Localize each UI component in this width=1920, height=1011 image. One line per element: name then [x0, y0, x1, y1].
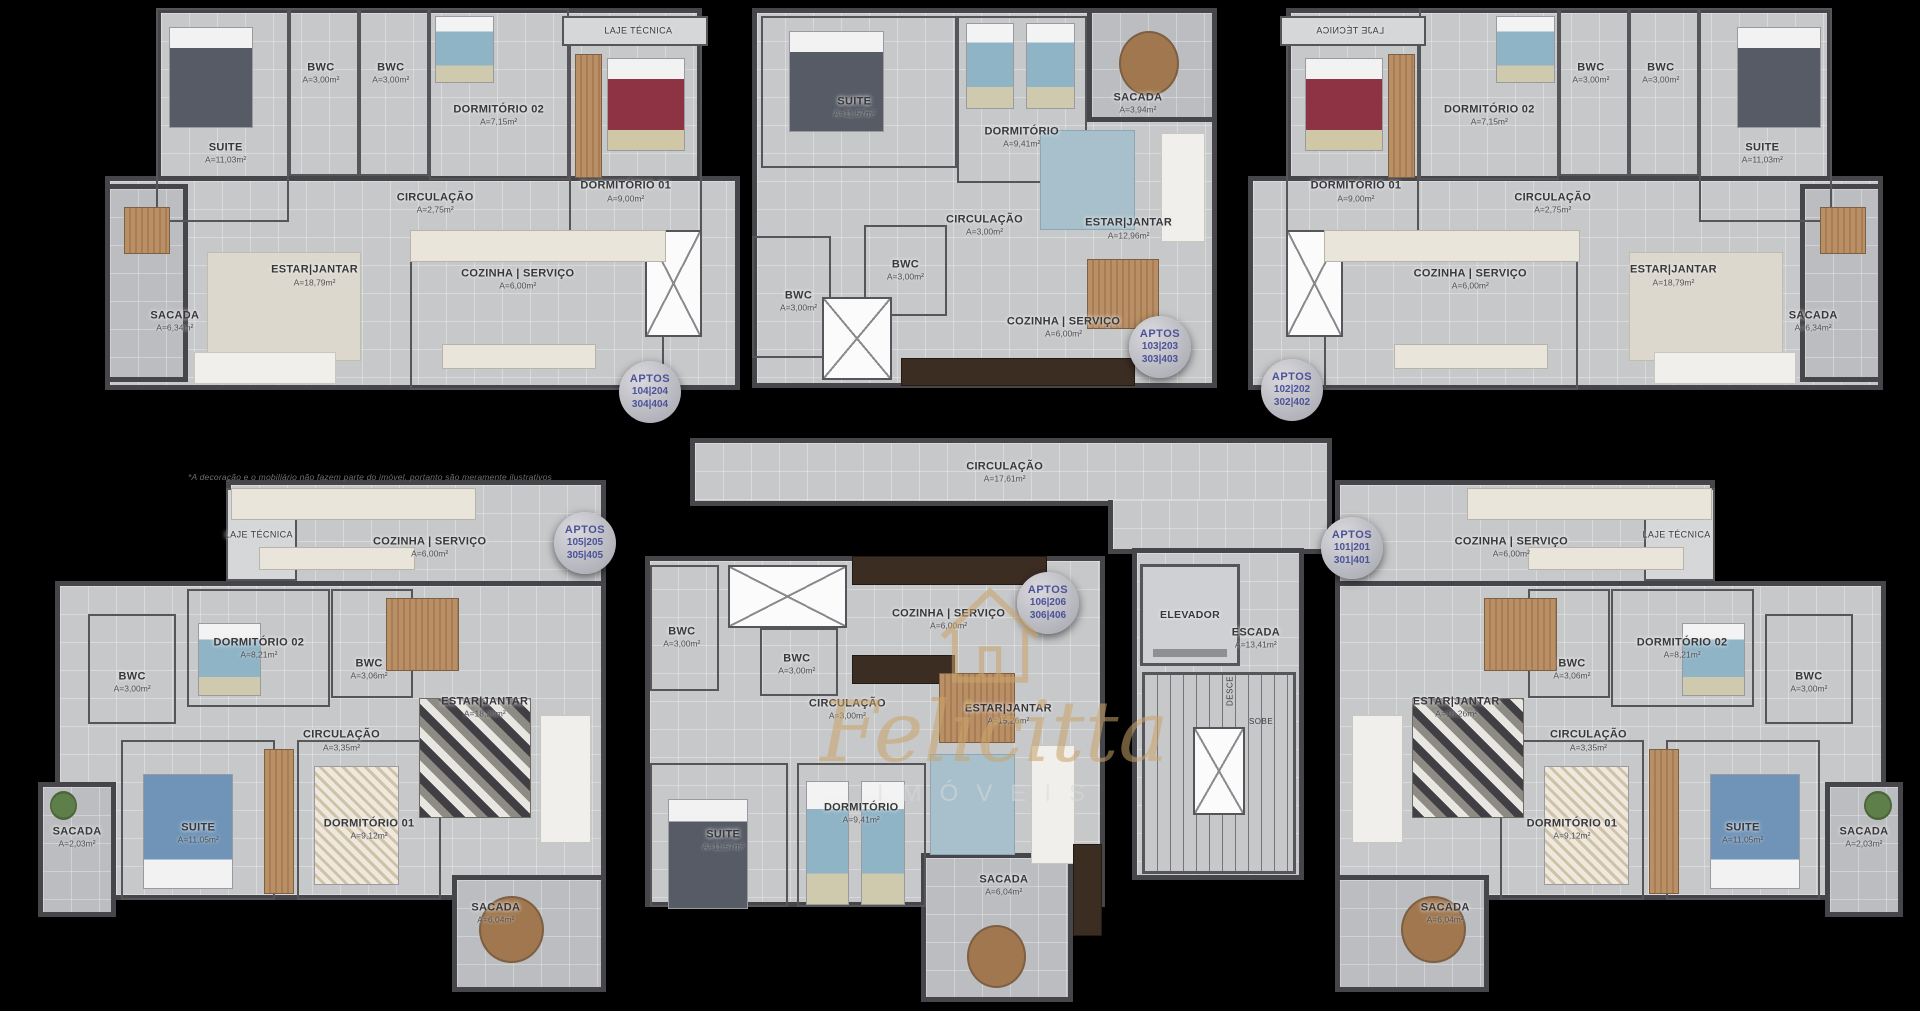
room-name: SACADA: [1840, 825, 1889, 838]
room-name: BWC: [1572, 61, 1609, 74]
room-area: A=11,05m²: [1722, 834, 1763, 844]
room-label: SUITEA=11,05m²: [178, 821, 219, 844]
badge-title: APTOS: [1140, 328, 1180, 342]
room-label: SACADAA=2,03m²: [53, 825, 102, 848]
counter-decor: [410, 230, 666, 263]
room-area: A=3,00m²: [780, 302, 817, 312]
room-name: SACADA: [150, 310, 199, 323]
bed-dark-decor: [668, 799, 748, 909]
room-label: LAJE TÉCNICA: [1316, 26, 1384, 37]
room-name: SACADA: [979, 873, 1028, 886]
disclaimer-text: *A decoração e o mobiliário não fazem pa…: [188, 472, 588, 482]
room-label: SACADAA=6,04m²: [1421, 901, 1470, 924]
room-name: DORMITÓRIO: [984, 126, 1059, 139]
room-area: A=9,41m²: [824, 814, 899, 824]
corridor-connector: [1108, 500, 1332, 554]
room-label: DORMITÓRIO 02A=8,21m²: [1637, 636, 1728, 659]
room-label: ESTAR|JANTARA=18,26m²: [441, 695, 528, 718]
wood-decor: [1649, 749, 1679, 894]
sofa-decor: [194, 352, 336, 385]
sofa-decor: [540, 715, 592, 843]
room-name: DORMITÓRIO 02: [453, 103, 544, 116]
room-area: A=3,00m²: [114, 683, 151, 693]
counter-decor: [442, 344, 596, 369]
room-area: A=2,03m²: [1840, 839, 1889, 849]
counter-decor: [1394, 344, 1548, 369]
counter-dark-decor: [901, 358, 1136, 387]
room-name: ESTAR|JANTAR: [271, 264, 358, 277]
room-area: A=3,06m²: [351, 671, 388, 681]
room-label: BWCA=3,00m²: [302, 61, 339, 84]
room-name: CIRCULAÇÃO: [809, 697, 886, 710]
room-area: A=11,57m²: [703, 841, 744, 851]
room-area: A=9,12m²: [1527, 830, 1618, 840]
room-area: A=7,15m²: [453, 116, 544, 126]
room-name: SUITE: [834, 95, 875, 108]
room-area: A=8,21m²: [1637, 650, 1728, 660]
room-label: DORMITÓRIOA=9,41m²: [984, 126, 1059, 149]
room-label: SACADAA=6,04m²: [471, 901, 520, 924]
badge-apt-numbers: 304|404: [632, 399, 668, 412]
room-name: SACADA: [53, 825, 102, 838]
bed-blue-decor: [1026, 23, 1075, 109]
room-area: A=6,00m²: [1414, 281, 1527, 291]
bed-blue-decor: [966, 23, 1015, 109]
room-area: A=11,03m²: [205, 155, 246, 165]
badge-title: APTOS: [1332, 529, 1372, 543]
unit-105-205-305-405: LAJE TÉCNICACOZINHA | SERVIÇOA=6,00m²DOR…: [55, 480, 606, 900]
room-area: A=18,79m²: [271, 277, 358, 287]
stair-shaft: [1193, 727, 1245, 815]
room-name: DORMITÓRIO 01: [324, 817, 415, 830]
room-label: LAJE TÉCNICA: [225, 529, 293, 540]
plant-decor: [1864, 791, 1892, 820]
room-name: DORMITÓRIO 02: [214, 636, 305, 649]
room-area: A=3,00m²: [1642, 74, 1679, 84]
room-area: A=12,96m²: [1085, 230, 1172, 240]
room-name: DORMITÓRIO 02: [1444, 103, 1535, 116]
bed-blue-decor: [806, 781, 849, 905]
room-area: A=3,00m²: [887, 272, 924, 282]
room-area: A=3,00m²: [663, 639, 700, 649]
room-name: DORMITÓRIO 01: [580, 180, 671, 193]
room-name: BWC: [1790, 670, 1827, 683]
apartment-badge: APTOS104|204304|404: [619, 361, 681, 423]
badge-apt-numbers: 103|203: [1142, 341, 1178, 354]
room-label: DORMITÓRIO 01A=9,12m²: [324, 817, 415, 840]
room-label: LAJE TÉCNICA: [604, 26, 672, 37]
room-area: A=18,26m²: [441, 708, 528, 718]
room-label: BWCA=3,06m²: [351, 657, 388, 680]
badge-apt-numbers: 104|204: [632, 386, 668, 399]
room-name: LAJE TÉCNICA: [225, 529, 293, 540]
room-name: CIRCULAÇÃO: [1550, 729, 1627, 742]
bed-red-decor: [1305, 58, 1383, 152]
room-area: A=6,00m²: [1007, 329, 1120, 339]
room-area: A=11,57m²: [834, 108, 875, 118]
room-label: LAJE TÉCNICA: [1643, 529, 1711, 540]
badge-apt-numbers: 106|206: [1030, 597, 1066, 610]
room-label: BWCA=3,00m²: [1642, 61, 1679, 84]
room-area: A=8,21m²: [214, 650, 305, 660]
wood-decor: [1820, 207, 1866, 255]
room-name: BWC: [663, 625, 700, 638]
room-label: ESTAR|JANTARA=18,79m²: [1630, 264, 1717, 287]
unit-102-202-302-402: SUITEA=11,03m²BWCA=3,00m²BWCA=3,00m²DORM…: [1248, 8, 1883, 390]
room-area: A=18,26m²: [1413, 708, 1500, 718]
sofa-decor: [1352, 715, 1404, 843]
counter-dark-decor: [852, 556, 1047, 585]
bed-red-decor: [607, 58, 685, 152]
room-wall: [359, 8, 429, 176]
wood-decor: [264, 749, 294, 894]
room-area: A=3,94m²: [1114, 105, 1163, 115]
counter-dark-decor: [1073, 844, 1103, 936]
stair-elevator-core: ELEVADOR ESCADA A=13,41m² DESCE SOBE: [1132, 548, 1304, 880]
room-name: SUITE: [1742, 141, 1783, 154]
room-area: A=6,04m²: [1421, 914, 1470, 924]
room-label: CIRCULAÇÃOA=2,75m²: [1514, 191, 1591, 214]
apartment-badge: APTOS105|205305|405: [554, 512, 616, 574]
room-label: DORMITÓRIO 01A=9,00m²: [580, 180, 671, 203]
apartment-badge: APTOS106|206306|406: [1017, 572, 1079, 634]
badge-apt-numbers: 305|405: [567, 550, 603, 563]
room-name: COZINHA | SERVIÇO: [1414, 268, 1527, 281]
room-name: COZINHA | SERVIÇO: [461, 268, 574, 281]
counter-decor: [1467, 488, 1711, 519]
room-label: ESTAR|JANTARA=15,26m²: [965, 702, 1052, 725]
room-area: A=7,15m²: [1444, 116, 1535, 126]
room-label: ESTAR|JANTARA=18,79m²: [271, 264, 358, 287]
unit-104-204-304-404: SUITEA=11,03m²BWCA=3,00m²BWCA=3,00m²DORM…: [105, 8, 740, 390]
room-name: COZINHA | SERVIÇO: [1007, 316, 1120, 329]
room-name: LAJE TÉCNICA: [1316, 26, 1384, 37]
room-area: A=3,35m²: [1550, 742, 1627, 752]
bed-dark-decor: [169, 27, 254, 128]
room-name: SACADA: [1421, 901, 1470, 914]
room-label: BWCA=3,00m²: [1572, 61, 1609, 84]
room-name: BWC: [887, 259, 924, 272]
room-name: ESTAR|JANTAR: [1630, 264, 1717, 277]
corridor: CIRCULAÇÃO A=17,61m²: [690, 438, 1332, 506]
bed-blue-decor: [435, 16, 494, 83]
room-label: SACADAA=6,04m²: [979, 873, 1028, 896]
room-label: SACADAA=2,03m²: [1840, 825, 1889, 848]
room-name: LAJE TÉCNICA: [1643, 529, 1711, 540]
room-area: A=6,04m²: [471, 914, 520, 924]
badge-title: APTOS: [1272, 371, 1312, 385]
room-area: A=3,00m²: [1790, 683, 1827, 693]
room-name: COZINHA | SERVIÇO: [1455, 536, 1568, 549]
room-area: A=6,00m²: [373, 549, 486, 559]
room-area: A=2,03m²: [53, 839, 102, 849]
room-label: SUITEA=11,57m²: [703, 828, 744, 851]
room-label: CIRCULAÇÃOA=3,00m²: [809, 697, 886, 720]
room-label: DORMITÓRIO 01A=9,12m²: [1527, 817, 1618, 840]
room-name: DORMITÓRIO: [824, 801, 899, 814]
room-label: SACADAA=3,94m²: [1114, 91, 1163, 114]
room-label: COZINHA | SERVIÇOA=6,00m²: [1455, 536, 1568, 559]
floorplan-canvas: *A decoração e o mobiliário não fazem pa…: [0, 0, 1920, 1011]
room-label: SACADAA=6,34m²: [150, 310, 199, 333]
wood-round-decor: [967, 925, 1026, 988]
room-area: A=9,12m²: [324, 830, 415, 840]
ventilation-shaft: [728, 565, 848, 628]
room-label: DORMITÓRIO 02A=7,15m²: [453, 103, 544, 126]
badge-apt-numbers: 301|401: [1334, 555, 1370, 568]
stairs-label: ESCADA A=13,41m²: [1232, 626, 1280, 649]
corridor-label: CIRCULAÇÃO A=17,61m²: [966, 460, 1043, 483]
room-label: DORMITÓRIO 02A=7,15m²: [1444, 103, 1535, 126]
wood-decor: [1388, 54, 1415, 178]
room-area: A=2,75m²: [397, 204, 474, 214]
badge-title: APTOS: [630, 373, 670, 387]
room-area: A=3,00m²: [778, 666, 815, 676]
room-name: SACADA: [1789, 310, 1838, 323]
room-label: DORMITÓRIO 02A=8,21m²: [214, 636, 305, 659]
room-label: CIRCULAÇÃOA=3,35m²: [1550, 729, 1627, 752]
staircase: [1142, 672, 1296, 874]
wood-round-decor: [1119, 31, 1179, 96]
room-area: A=6,00m²: [1455, 549, 1568, 559]
room-name: SUITE: [703, 828, 744, 841]
room-area: A=3,06m²: [1553, 671, 1590, 681]
badge-apt-numbers: 102|202: [1274, 384, 1310, 397]
room-area: A=6,00m²: [892, 621, 1005, 631]
room-label: SUITEA=11,05m²: [1722, 821, 1763, 844]
room-label: COZINHA | SERVIÇOA=6,00m²: [373, 536, 486, 559]
room-area: A=3,00m²: [809, 711, 886, 721]
room-name: CIRCULAÇÃO: [1514, 191, 1591, 204]
room-label: ESTAR|JANTARA=18,26m²: [1413, 695, 1500, 718]
room-label: COZINHA | SERVIÇOA=6,00m²: [1007, 316, 1120, 339]
room-name: ESTAR|JANTAR: [441, 695, 528, 708]
room-area: A=3,00m²: [1572, 74, 1609, 84]
room-label: BWCA=3,00m²: [778, 652, 815, 675]
ventilation-shaft: [822, 297, 892, 381]
room-area: A=3,00m²: [946, 226, 1023, 236]
rug-blue-decor: [930, 754, 1015, 855]
stairs-down-label: DESCE: [1226, 676, 1235, 706]
room-label: CIRCULAÇÃOA=3,35m²: [303, 729, 380, 752]
room-name: DORMITÓRIO 01: [1527, 817, 1618, 830]
room-label: BWCA=3,00m²: [372, 61, 409, 84]
room-wall: [1629, 8, 1699, 176]
room-name: ESTAR|JANTAR: [1085, 217, 1172, 230]
room-label: CIRCULAÇÃOA=2,75m²: [397, 191, 474, 214]
apartment-badge: APTOS103|203303|403: [1129, 316, 1191, 378]
room-label: SACADAA=6,34m²: [1789, 310, 1838, 333]
room-name: SUITE: [178, 821, 219, 834]
apartment-badge: APTOS102|202302|402: [1261, 359, 1323, 421]
room-label: BWCA=3,00m²: [663, 625, 700, 648]
bed-blue-decor: [861, 781, 904, 905]
room-label: BWCA=3,00m²: [780, 289, 817, 312]
room-name: LAJE TÉCNICA: [604, 26, 672, 37]
room-name: SACADA: [471, 901, 520, 914]
bed-blue-decor: [1496, 16, 1555, 83]
room-wall: [1559, 8, 1629, 176]
room-area: A=6,04m²: [979, 886, 1028, 896]
room-name: ESTAR|JANTAR: [1413, 695, 1500, 708]
room-name: COZINHA | SERVIÇO: [892, 607, 1005, 620]
room-label: DORMITÓRIOA=9,41m²: [824, 801, 899, 824]
sofa-decor: [1031, 745, 1074, 864]
room-name: ESTAR|JANTAR: [965, 702, 1052, 715]
room-name: SUITE: [205, 141, 246, 154]
room-area: A=15,26m²: [965, 715, 1052, 725]
wood-decor: [575, 54, 602, 178]
room-label: BWCA=3,00m²: [887, 259, 924, 282]
room-area: A=6,00m²: [461, 281, 574, 291]
badge-apt-numbers: 105|205: [567, 537, 603, 550]
room-label: SUITEA=11,03m²: [1742, 141, 1783, 164]
badge-title: APTOS: [1028, 584, 1068, 598]
room-name: BWC: [1642, 61, 1679, 74]
wood-decor: [386, 598, 460, 671]
room-area: A=9,00m²: [580, 193, 671, 203]
room-area: A=3,00m²: [302, 74, 339, 84]
room-area: A=2,75m²: [1514, 204, 1591, 214]
room-area: A=6,34m²: [150, 323, 199, 333]
room-name: BWC: [778, 652, 815, 665]
wood-decor: [1484, 598, 1558, 671]
elevator: ELEVADOR: [1140, 564, 1240, 666]
room-label: BWCA=3,06m²: [1553, 657, 1590, 680]
room-label: BWCA=3,00m²: [114, 670, 151, 693]
room-label: SUITEA=11,03m²: [205, 141, 246, 164]
room-label: ESTAR|JANTARA=12,96m²: [1085, 217, 1172, 240]
apartment-badge: APTOS101|201301|401: [1321, 517, 1383, 579]
room-name: CIRCULAÇÃO: [303, 729, 380, 742]
unit-101-201-301-401: LAJE TÉCNICACOZINHA | SERVIÇOA=6,00m²DOR…: [1335, 480, 1886, 900]
room-area: A=3,35m²: [303, 742, 380, 752]
room-name: BWC: [372, 61, 409, 74]
room-area: A=3,00m²: [372, 74, 409, 84]
room-label: BWCA=3,00m²: [1790, 670, 1827, 693]
room-label: SUITEA=11,57m²: [834, 95, 875, 118]
badge-apt-numbers: 303|403: [1142, 354, 1178, 367]
room-area: A=9,00m²: [1311, 193, 1402, 203]
badge-apt-numbers: 101|201: [1334, 542, 1370, 555]
badge-apt-numbers: 306|406: [1030, 610, 1066, 623]
room-name: SACADA: [1114, 91, 1163, 104]
badge-title: APTOS: [565, 524, 605, 538]
plant-decor: [50, 791, 78, 820]
room-name: DORMITÓRIO 02: [1637, 636, 1728, 649]
room-wall: [289, 8, 359, 176]
room-name: BWC: [114, 670, 151, 683]
room-area: A=18,79m²: [1630, 277, 1717, 287]
room-name: BWC: [302, 61, 339, 74]
bed-dark-decor: [1737, 27, 1822, 128]
stairs-up-label: SOBE: [1249, 717, 1273, 726]
room-label: COZINHA | SERVIÇOA=6,00m²: [461, 268, 574, 291]
sofa-decor: [1654, 352, 1796, 385]
room-label: CIRCULAÇÃOA=3,00m²: [946, 213, 1023, 236]
room-name: CIRCULAÇÃO: [946, 213, 1023, 226]
counter-decor: [231, 488, 475, 519]
room-name: BWC: [1553, 657, 1590, 670]
room-area: A=11,05m²: [178, 834, 219, 844]
room-label: DORMITÓRIO 01A=9,00m²: [1311, 180, 1402, 203]
counter-decor: [1324, 230, 1580, 263]
room-label: COZINHA | SERVIÇOA=6,00m²: [892, 607, 1005, 630]
room-name: BWC: [780, 289, 817, 302]
room-name: BWC: [351, 657, 388, 670]
wood-decor: [124, 207, 170, 255]
room-name: CIRCULAÇÃO: [397, 191, 474, 204]
room-area: A=9,41m²: [984, 139, 1059, 149]
room-name: DORMITÓRIO 01: [1311, 180, 1402, 193]
room-label: COZINHA | SERVIÇOA=6,00m²: [1414, 268, 1527, 291]
badge-apt-numbers: 302|402: [1274, 397, 1310, 410]
room-area: A=11,03m²: [1742, 155, 1783, 165]
room-area: A=6,34m²: [1789, 323, 1838, 333]
room-name: COZINHA | SERVIÇO: [373, 536, 486, 549]
room-name: SUITE: [1722, 821, 1763, 834]
